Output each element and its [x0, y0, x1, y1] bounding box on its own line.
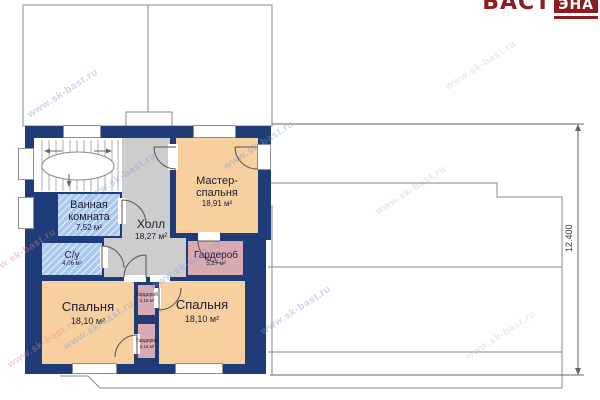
plan-detail-drawing: [0, 0, 600, 400]
door-swing-wc: [102, 246, 124, 268]
arrow-down-icon: [67, 181, 72, 187]
arrow-left-icon: [44, 149, 50, 154]
door-swing-bedroom-right: [159, 288, 181, 310]
company-logo: БАСТ ЭНА: [482, 0, 598, 19]
floor-plan-page: 12.400: [0, 0, 600, 400]
door-swing-balcony: [235, 147, 257, 169]
door-swing-wardrobe: [198, 241, 220, 263]
logo-box: ЭНА: [554, 0, 598, 19]
logo-text: БАСТ: [482, 0, 551, 14]
arrow-right-icon: [106, 149, 112, 154]
door-swings: [102, 147, 257, 357]
door-swing-master: [154, 147, 176, 169]
door-swing-bedroom-left: [124, 255, 146, 277]
door-swing-bathroom: [122, 200, 146, 224]
logo-box-text: ЭНА: [558, 0, 594, 13]
door-swing-closet-bottom: [115, 335, 137, 357]
stair-void-oval: [42, 152, 114, 180]
